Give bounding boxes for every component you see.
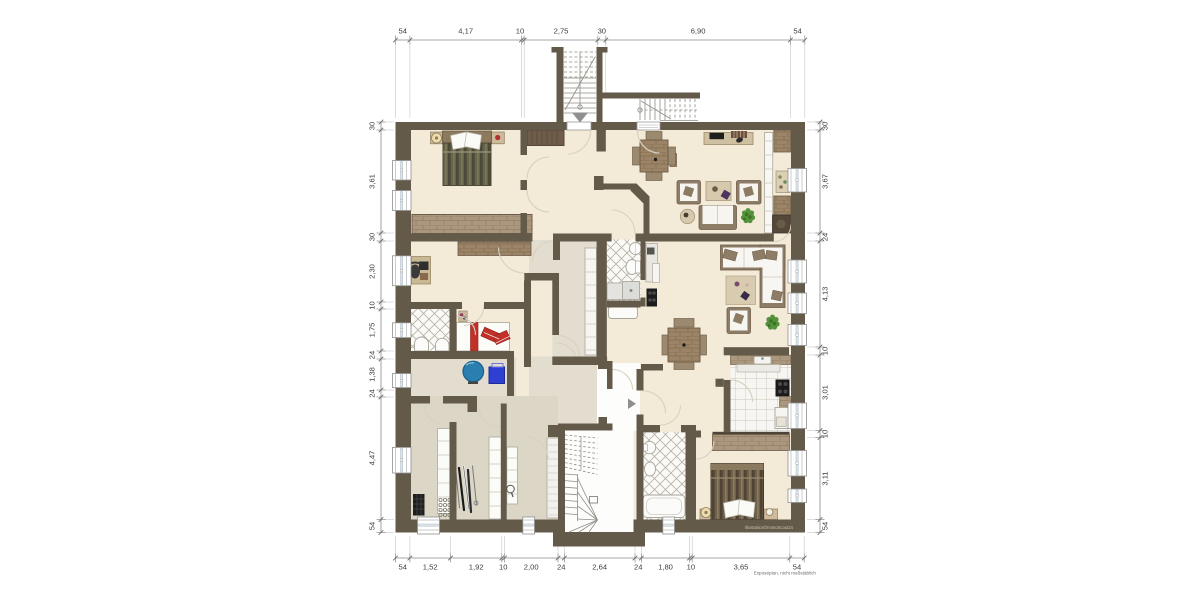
svg-text:2,00: 2,00 [524,563,539,572]
svg-text:2,75: 2,75 [554,27,569,36]
svg-text:1,92: 1,92 [469,563,484,572]
svg-text:1,38: 1,38 [368,367,377,382]
svg-text:1,80: 1,80 [658,563,673,572]
svg-text:10: 10 [516,27,524,36]
svg-text:10: 10 [821,347,830,355]
svg-text:3,65: 3,65 [734,563,749,572]
svg-text:24: 24 [557,563,565,572]
svg-text:54: 54 [793,27,801,36]
svg-text:1,75: 1,75 [368,323,377,338]
svg-text:2,30: 2,30 [368,264,377,279]
svg-text:10: 10 [368,301,377,309]
svg-text:10: 10 [499,563,507,572]
svg-text:3,01: 3,01 [821,385,830,400]
svg-text:Illustration©ImmoScout24: Illustration©ImmoScout24 [745,525,794,530]
svg-text:3,61: 3,61 [368,174,377,189]
svg-text:6,90: 6,90 [691,27,706,36]
svg-text:24: 24 [368,351,377,359]
svg-text:4,13: 4,13 [821,287,830,302]
svg-text:30: 30 [368,122,377,130]
svg-text:4,17: 4,17 [458,27,473,36]
svg-text:54: 54 [368,522,377,530]
svg-text:10: 10 [821,430,830,438]
svg-text:4,47: 4,47 [368,451,377,466]
svg-text:30: 30 [821,122,830,130]
svg-text:24: 24 [634,563,642,572]
svg-text:24: 24 [821,233,830,241]
svg-text:30: 30 [368,233,377,241]
svg-text:2,64: 2,64 [592,563,607,572]
svg-text:1,52: 1,52 [423,563,438,572]
svg-text:54: 54 [398,563,406,572]
svg-text:30: 30 [598,27,606,36]
svg-text:54: 54 [398,27,406,36]
svg-text:3,67: 3,67 [821,174,830,189]
svg-text:24: 24 [368,389,377,397]
svg-text:3,11: 3,11 [821,471,830,485]
svg-text:Exposéplan, nicht maßstäblich: Exposéplan, nicht maßstäblich [754,571,817,576]
svg-text:54: 54 [821,522,830,530]
svg-text:10: 10 [687,563,695,572]
